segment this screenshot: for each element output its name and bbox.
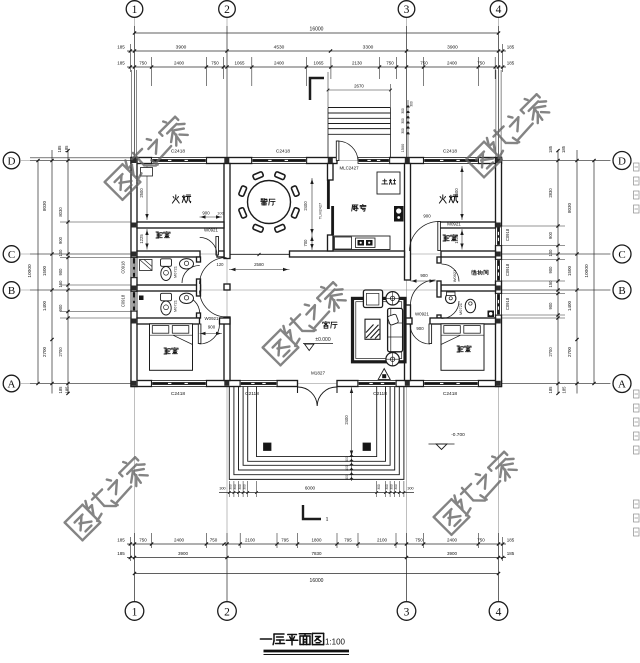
svg-text:±0.000: ±0.000 <box>315 337 330 343</box>
svg-text:795: 795 <box>344 538 352 543</box>
svg-text:C0918: C0918 <box>121 261 126 274</box>
svg-text:C2418: C2418 <box>276 149 290 155</box>
svg-text:185: 185 <box>562 386 567 394</box>
svg-text:185: 185 <box>548 145 553 153</box>
svg-text:900: 900 <box>548 266 553 274</box>
svg-text:300: 300 <box>242 484 246 490</box>
svg-text:C2418: C2418 <box>171 149 185 155</box>
svg-text:1500: 1500 <box>567 265 572 276</box>
svg-text:185: 185 <box>507 551 515 556</box>
svg-text:185: 185 <box>58 386 63 394</box>
svg-text:C: C <box>8 249 15 261</box>
svg-text:3: 3 <box>404 4 410 16</box>
svg-text:900: 900 <box>416 326 424 331</box>
svg-text:1225: 1225 <box>139 234 144 244</box>
svg-text:2580: 2580 <box>254 262 264 267</box>
svg-text:2830: 2830 <box>548 188 553 198</box>
svg-text:2: 2 <box>224 607 230 619</box>
svg-text:2400: 2400 <box>447 538 458 543</box>
svg-text:2400: 2400 <box>344 415 349 425</box>
svg-text:750: 750 <box>139 538 147 543</box>
svg-text:W0921: W0921 <box>204 228 218 233</box>
svg-text:700: 700 <box>303 239 308 247</box>
svg-text:2400: 2400 <box>274 61 285 66</box>
svg-text:185: 185 <box>507 45 515 50</box>
svg-text:2400: 2400 <box>303 201 308 211</box>
svg-text:185: 185 <box>65 386 70 394</box>
svg-text:300: 300 <box>377 484 381 490</box>
svg-text:C2418: C2418 <box>443 391 457 397</box>
svg-text:300: 300 <box>389 484 393 490</box>
svg-text:M0721: M0721 <box>458 303 463 315</box>
svg-text:D: D <box>618 156 626 168</box>
svg-text:900: 900 <box>202 211 210 216</box>
svg-text:300: 300 <box>407 487 413 491</box>
svg-text:300: 300 <box>410 101 414 107</box>
svg-text:300: 300 <box>345 474 349 480</box>
svg-text:750: 750 <box>386 61 394 66</box>
svg-text:150: 150 <box>58 280 63 288</box>
svg-text:4: 4 <box>496 4 502 16</box>
svg-text:2700: 2700 <box>548 347 553 357</box>
svg-text:185: 185 <box>561 145 566 153</box>
svg-text:7830: 7830 <box>311 551 322 556</box>
svg-text:3900: 3900 <box>178 551 189 556</box>
svg-text:W0921: W0921 <box>415 312 429 317</box>
svg-text:900: 900 <box>58 304 63 312</box>
svg-text:300: 300 <box>345 465 349 471</box>
svg-text:1500: 1500 <box>401 144 405 152</box>
svg-text:1500: 1500 <box>42 265 47 276</box>
svg-text:C0918: C0918 <box>505 263 510 276</box>
svg-text:4530: 4530 <box>274 45 285 51</box>
svg-text:16000: 16000 <box>310 578 324 584</box>
svg-text:750: 750 <box>210 538 218 543</box>
svg-text:900: 900 <box>58 268 63 276</box>
svg-text:10000: 10000 <box>584 264 590 278</box>
svg-text:3: 3 <box>404 607 410 619</box>
svg-text:900: 900 <box>58 236 63 244</box>
svg-text:C0918: C0918 <box>505 228 510 241</box>
svg-text:100: 100 <box>548 249 553 257</box>
svg-text:10000: 10000 <box>27 264 33 278</box>
svg-text:2130: 2130 <box>352 61 363 66</box>
svg-text:2400: 2400 <box>447 61 458 66</box>
svg-text:185: 185 <box>117 538 125 543</box>
svg-text:2670: 2670 <box>354 84 364 89</box>
svg-text:A: A <box>618 379 626 391</box>
svg-text:8030: 8030 <box>567 202 572 213</box>
svg-text:2700: 2700 <box>42 346 47 357</box>
svg-text:300: 300 <box>401 118 405 124</box>
svg-text:100: 100 <box>217 211 224 216</box>
svg-text:185: 185 <box>57 145 62 153</box>
svg-text:185: 185 <box>64 145 69 153</box>
svg-text:-0.700: -0.700 <box>451 432 465 438</box>
svg-text:750: 750 <box>139 61 147 66</box>
svg-text:185: 185 <box>548 386 553 394</box>
svg-text:3900: 3900 <box>447 551 458 556</box>
svg-text:750: 750 <box>420 61 428 66</box>
svg-text:900: 900 <box>548 231 553 239</box>
svg-text:2100: 2100 <box>377 538 388 543</box>
svg-text:1: 1 <box>325 516 328 523</box>
svg-text:1:100: 1:100 <box>325 638 346 647</box>
svg-text:900: 900 <box>420 273 428 278</box>
svg-text:300: 300 <box>238 484 242 490</box>
svg-text:2500: 2500 <box>139 188 144 198</box>
svg-text:185: 185 <box>117 551 125 556</box>
svg-text:795: 795 <box>281 538 289 543</box>
svg-text:185: 185 <box>117 61 125 66</box>
svg-text:2400: 2400 <box>174 61 185 66</box>
svg-text:2: 2 <box>224 4 230 16</box>
svg-text:2500: 2500 <box>454 188 459 198</box>
svg-text:1065: 1065 <box>234 61 245 66</box>
svg-text:W0921: W0921 <box>205 316 219 321</box>
svg-text:16000: 16000 <box>310 27 324 33</box>
svg-text:300: 300 <box>385 484 389 490</box>
svg-text:D: D <box>8 156 16 168</box>
svg-text:M0921: M0921 <box>447 222 461 227</box>
svg-text:2400: 2400 <box>174 538 185 543</box>
svg-text:900: 900 <box>423 214 431 219</box>
svg-text:120: 120 <box>217 262 225 267</box>
svg-text:M0721: M0721 <box>173 300 178 312</box>
svg-text:300: 300 <box>219 487 225 491</box>
svg-text:C2418: C2418 <box>443 149 457 155</box>
svg-text:750: 750 <box>211 61 219 66</box>
svg-text:1: 1 <box>132 607 138 619</box>
svg-text:C0918: C0918 <box>505 297 510 310</box>
svg-text:300: 300 <box>401 128 405 134</box>
svg-text:C2418: C2418 <box>171 391 185 397</box>
svg-text:M1827: M1827 <box>311 371 325 376</box>
svg-text:1400: 1400 <box>42 300 47 311</box>
svg-text:A: A <box>8 379 16 391</box>
svg-text:2100: 2100 <box>245 538 256 543</box>
svg-text:300: 300 <box>394 484 398 490</box>
svg-text:750: 750 <box>415 538 423 543</box>
svg-text:1800: 1800 <box>311 538 322 543</box>
svg-text:W0921: W0921 <box>452 270 457 282</box>
svg-text:C: C <box>618 249 625 261</box>
svg-text:100: 100 <box>58 249 63 257</box>
svg-text:6000: 6000 <box>305 486 316 491</box>
svg-text:1065: 1065 <box>313 61 324 66</box>
svg-text:300: 300 <box>229 484 233 490</box>
svg-text:MLC2427: MLC2427 <box>339 166 359 171</box>
svg-text:3300: 3300 <box>363 45 374 51</box>
svg-text:1400: 1400 <box>567 300 572 311</box>
svg-text:B: B <box>618 285 625 297</box>
svg-text:300: 300 <box>345 456 349 462</box>
svg-text:8030: 8030 <box>58 207 63 217</box>
svg-text:TLM2427: TLM2427 <box>318 203 323 219</box>
svg-text:2700: 2700 <box>567 346 572 357</box>
svg-text:300: 300 <box>233 484 237 490</box>
svg-text:B: B <box>8 285 15 297</box>
svg-text:M0721: M0721 <box>173 266 178 278</box>
svg-text:3900: 3900 <box>176 45 187 51</box>
svg-text:C0918: C0918 <box>121 294 126 307</box>
svg-text:1: 1 <box>132 4 138 16</box>
svg-text:3900: 3900 <box>447 45 458 51</box>
svg-text:185: 185 <box>507 61 515 66</box>
svg-text:300: 300 <box>401 108 405 114</box>
svg-text:900: 900 <box>548 302 553 310</box>
svg-text:8030: 8030 <box>42 200 47 211</box>
svg-text:185: 185 <box>117 45 125 50</box>
svg-text:2700: 2700 <box>58 347 63 357</box>
svg-text:185: 185 <box>507 538 515 543</box>
svg-text:4: 4 <box>496 607 502 619</box>
svg-text:900: 900 <box>208 325 216 330</box>
